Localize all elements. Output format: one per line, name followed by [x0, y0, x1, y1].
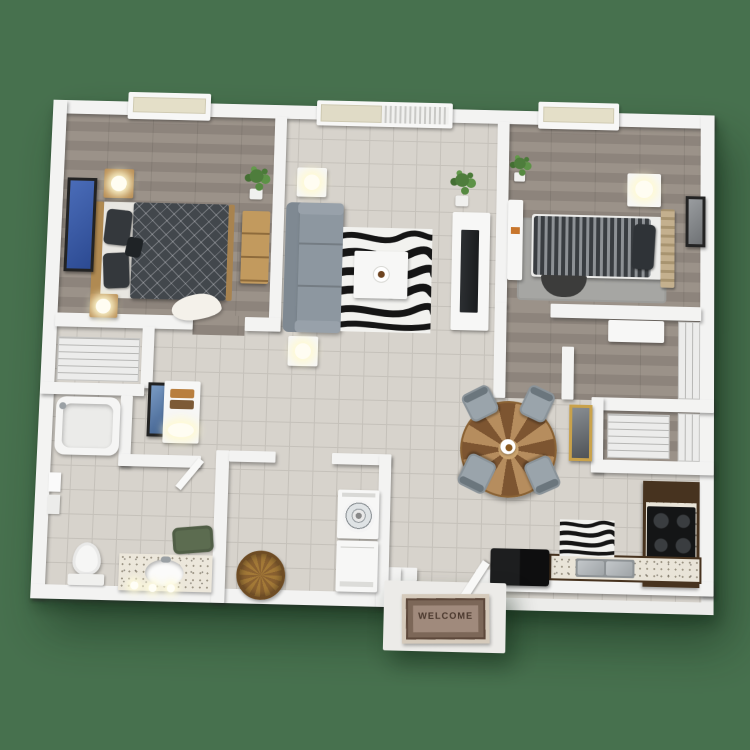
- dryer-door-seam: [341, 546, 374, 548]
- faucet: [161, 556, 171, 562]
- plant-foliage: [250, 169, 264, 183]
- floor-plan-scene: WELCOME: [0, 0, 750, 750]
- towel: [170, 400, 194, 410]
- vanity-light: [167, 584, 175, 592]
- cabinet: [646, 484, 697, 503]
- pillow: [103, 252, 130, 289]
- welcome-mat-center: WELCOME: [406, 598, 486, 639]
- plant-pot: [514, 172, 525, 181]
- dark-pillow: [631, 224, 656, 271]
- range-stove: [647, 506, 696, 560]
- kitchen-counter-bottom: [549, 554, 701, 584]
- potted-plant-icon: [239, 158, 274, 200]
- window-pane: [543, 107, 614, 124]
- nightstand: [627, 173, 661, 207]
- washer-drum: [342, 500, 375, 533]
- vanity-light: [148, 584, 156, 592]
- towel: [47, 495, 60, 515]
- closet-wire-shelf: [678, 413, 700, 462]
- tub-basin: [61, 403, 113, 448]
- vanity-light: [130, 581, 138, 589]
- wall: [245, 317, 281, 332]
- hall-dresser: [162, 381, 200, 444]
- plant-foliage: [455, 173, 469, 187]
- wall: [140, 326, 154, 388]
- bedroom1-window: [128, 92, 212, 121]
- double-sink: [576, 558, 635, 578]
- welcome-mat: WELCOME: [402, 594, 490, 644]
- sink: [145, 559, 185, 587]
- table-lamp: [111, 176, 127, 192]
- towel: [170, 389, 194, 399]
- washer: [337, 489, 380, 539]
- table-lamp: [295, 343, 311, 359]
- wall: [40, 382, 145, 397]
- table-lamp: [168, 423, 195, 438]
- wall: [118, 454, 201, 468]
- nightstand: [103, 169, 134, 199]
- sofa-seat: [296, 202, 343, 333]
- sink-basin: [606, 561, 633, 576]
- tv-console: [450, 212, 490, 331]
- blue-wall-art: [63, 177, 97, 271]
- closet-wire-shelf: [607, 413, 670, 459]
- sofa: [282, 202, 343, 333]
- flat-tv: [460, 230, 479, 313]
- table-lamp: [304, 174, 320, 190]
- refrigerator: [490, 548, 549, 586]
- floor-plan: WELCOME: [28, 100, 715, 662]
- toilet-bowl: [72, 542, 102, 575]
- gold-framed-mirror: [569, 405, 593, 462]
- nightstand: [89, 293, 118, 317]
- sliding-glass-door: [316, 100, 452, 128]
- wall: [561, 347, 574, 400]
- dryer-panel: [340, 581, 374, 587]
- vanity: [118, 553, 213, 592]
- window-pane: [133, 97, 206, 114]
- welcome-mat-text: WELCOME: [406, 598, 486, 633]
- closet-cabinet: [608, 320, 664, 343]
- plant-foliage: [514, 157, 526, 169]
- wall: [699, 115, 714, 596]
- bedroom2-window: [538, 102, 619, 131]
- desk: [507, 200, 523, 281]
- sink-basin: [578, 560, 605, 575]
- vertical-blinds: [382, 106, 449, 125]
- coffee-table: [353, 251, 408, 300]
- wall: [493, 302, 507, 398]
- side-table: [287, 336, 318, 367]
- sofa-armrest: [298, 202, 344, 215]
- slat-headboard: [660, 209, 674, 288]
- potted-plant-icon: [510, 150, 529, 182]
- table-lamp: [635, 180, 653, 198]
- wall: [229, 450, 276, 462]
- twin-bed: [531, 214, 663, 280]
- centerpiece: [505, 444, 512, 451]
- toilet-tank: [67, 574, 104, 586]
- wall-art: [685, 196, 705, 247]
- plant-pot: [455, 195, 468, 206]
- toilet: [67, 542, 105, 586]
- desk-book: [511, 227, 520, 234]
- bath-mat: [172, 525, 214, 555]
- sofa-armrest: [294, 320, 340, 333]
- plant-pot: [249, 189, 262, 200]
- closet-wire-shelf: [678, 322, 700, 400]
- dryer: [335, 540, 378, 592]
- potted-plant-icon: [445, 161, 479, 206]
- zebra-rug-small: [560, 519, 615, 557]
- towel: [48, 472, 61, 492]
- duvet: [130, 202, 229, 300]
- glass-pane: [321, 104, 382, 123]
- linen-closet-shelving: [56, 336, 140, 382]
- washer-controls: [342, 493, 375, 498]
- dresser: [240, 211, 270, 284]
- side-table: [297, 167, 328, 197]
- queen-bed: [90, 201, 235, 300]
- bathtub: [54, 396, 121, 456]
- table-lamp: [95, 299, 111, 314]
- towel-bar: [46, 470, 62, 517]
